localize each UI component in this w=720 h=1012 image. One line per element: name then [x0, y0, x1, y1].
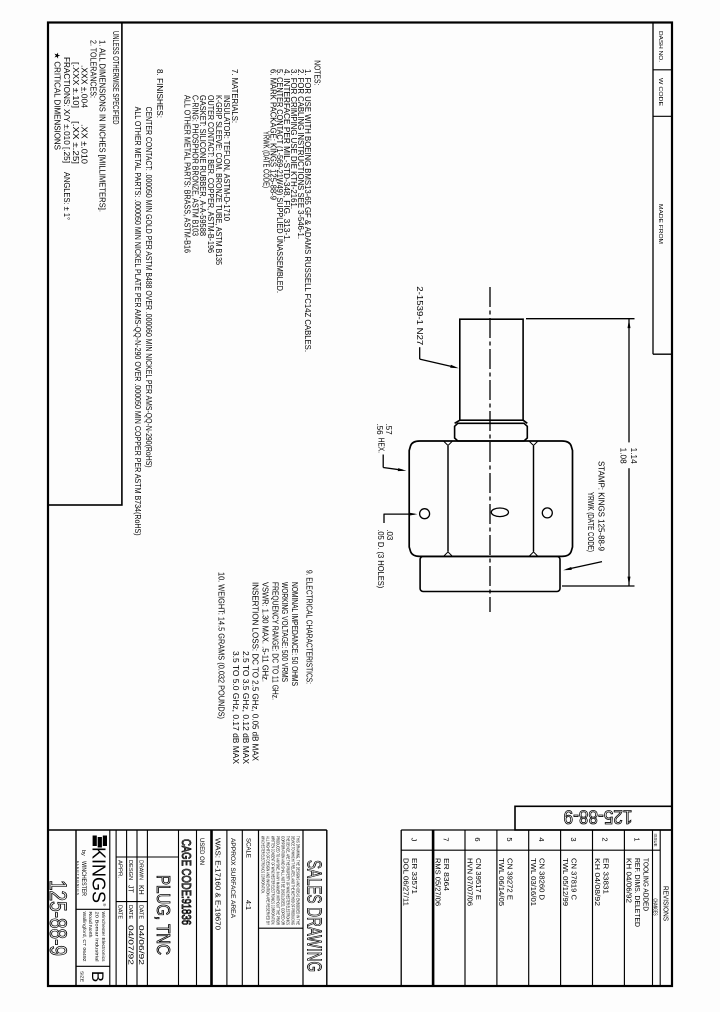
svg-text:2: 2 — [601, 837, 610, 841]
svg-text:CAGE CODE:91836: CAGE CODE:91836 — [179, 839, 193, 925]
svg-text:REVISIONS: REVISIONS — [661, 886, 668, 921]
svg-text:WAS: E-17160 & E-19670: WAS: E-17160 & E-19670 — [213, 838, 222, 930]
svg-text:MADE FROM: MADE FROM — [657, 204, 663, 244]
svg-text:4: 4 — [537, 837, 546, 841]
svg-text:ANGLES: ± 1°: ANGLES: ± 1° — [62, 172, 71, 220]
svg-text:VSWR: 1.30 MAX. .5-11 GHz.: VSWR: 1.30 MAX. .5-11 GHz. — [260, 582, 269, 682]
svg-text:6: 6 — [473, 837, 482, 841]
svg-text:Winchester Electronics: Winchester Electronics — [101, 912, 106, 963]
svg-text:04/07/92: 04/07/92 — [127, 925, 136, 965]
svg-text:YRWK (DATE CODE): YRWK (DATE CODE) — [586, 492, 595, 552]
svg-text:PLUG, TNC: PLUG, TNC — [153, 875, 173, 955]
svg-text:TWL 05/12/99: TWL 05/12/99 — [561, 858, 570, 906]
svg-text:4:1: 4:1 — [244, 900, 253, 910]
svg-text:®: ® — [102, 903, 107, 906]
svg-text:8. FINISHES:: 8. FINISHES: — [155, 69, 164, 118]
svg-text:FREQUENCY RANGE: DC TO 11 GHz.: FREQUENCY RANGE: DC TO 11 GHz. — [270, 582, 279, 700]
svg-text:3.5 TO 5.0 GHz, 0.17 dB MAX: 3.5 TO 5.0 GHz, 0.17 dB MAX — [231, 651, 240, 765]
svg-text:1.08: 1.08 — [619, 448, 628, 465]
svg-text:1.14: 1.14 — [629, 448, 638, 465]
svg-text:DASH NO.: DASH NO. — [657, 31, 663, 63]
svg-text:NOTES:: NOTES: — [313, 60, 322, 85]
svg-text:04/06/92: 04/06/92 — [137, 925, 146, 965]
svg-text:TWL 06/14/05: TWL 06/14/05 — [497, 858, 506, 906]
svg-text:KH 04/08/92: KH 04/08/92 — [593, 858, 602, 906]
svg-text:DATE: DATE — [127, 905, 133, 920]
svg-text:.03: .03 — [385, 529, 394, 541]
svg-text:SALES DRAWING: SALES DRAWING — [303, 860, 325, 972]
svg-text:10. WEIGHT: 14.5 GRAMS (0.032: 10. WEIGHT: 14.5 GRAMS (0.032 POUNDS) — [217, 572, 226, 719]
svg-text:W CODE: W CODE — [657, 78, 663, 106]
svg-text:SIZE: SIZE — [80, 971, 85, 982]
svg-text:DATE: DATE — [116, 905, 122, 920]
svg-text:ALL OTHER METAL PARTS: BRASS,: ALL OTHER METAL PARTS: BRASS, ASTM-B16 — [182, 95, 191, 253]
svg-text:20 Bomar Industrial: 20 Bomar Industrial — [95, 912, 100, 962]
svg-text:DESGN: DESGN — [127, 860, 133, 880]
svg-text:[.XX ±.25]: [.XX ±.25] — [71, 121, 80, 164]
svg-text:HEX.: HEX. — [377, 438, 386, 453]
svg-text:Road North: Road North — [88, 912, 93, 939]
svg-text:.05 D. (3 HOLES): .05 D. (3 HOLES) — [376, 529, 385, 588]
svg-text:Wallingford, CT 06492: Wallingford, CT 06492 — [82, 912, 87, 963]
svg-text:JT: JT — [127, 885, 134, 894]
svg-text:TWL 03/16/01: TWL 03/16/01 — [529, 858, 538, 906]
svg-text:USED ON: USED ON — [198, 838, 205, 865]
svg-text:[.XXX ±.10]: [.XXX ±.10] — [71, 62, 80, 108]
svg-text:9. ELECTRICAL CHARACTERISTICS:: 9. ELECTRICAL CHARACTERISTICS: — [305, 570, 314, 684]
svg-text:SCALE: SCALE — [245, 838, 252, 859]
svg-text:INSERTION LOSS: DC TO 2.5 GHz,: INSERTION LOSS: DC TO 2.5 GHz, 0.05 dB M… — [251, 582, 260, 762]
svg-text:.XXX ±.004: .XXX ±.004 — [80, 65, 89, 109]
svg-text:1. ALL DIMENSIONS IN INCHES [M: 1. ALL DIMENSIONS IN INCHES [MILLIMETERS… — [97, 40, 106, 212]
svg-text:HVN 07/07/06: HVN 07/07/06 — [465, 858, 474, 906]
svg-text:125-88-9: 125-88-9 — [564, 806, 633, 827]
svg-text:5: 5 — [505, 837, 514, 841]
svg-text:★ CRITICAL DIMENSIONS: ★ CRITICAL DIMENSIONS — [53, 52, 62, 150]
svg-text:KINGS: KINGS — [89, 847, 110, 903]
svg-text:1: 1 — [633, 837, 642, 841]
svg-text:UNLESS OTHERWISE SPECIFIED: UNLESS OTHERWISE SPECIFIED — [111, 31, 120, 125]
svg-text:B: B — [88, 971, 107, 982]
svg-text:DATE: DATE — [137, 905, 143, 920]
svg-text:APPROX SURFACE AREA: APPROX SURFACE AREA — [229, 838, 236, 919]
svg-text:by: by — [80, 850, 86, 856]
svg-text:2-1539-1 N27: 2-1539-1 N27 — [415, 286, 424, 346]
svg-text:ALL OTHER METAL PARTS: .000050: ALL OTHER METAL PARTS: .000050 MIN NICKE… — [133, 107, 142, 536]
svg-text:125-88-9: 125-88-9 — [44, 880, 71, 956]
svg-text:CENTER CONTACT: .000050 MIN GO: CENTER CONTACT: .000050 MIN GOLD PER AST… — [144, 107, 153, 468]
svg-text:.57: .57 — [384, 424, 393, 436]
svg-text:WORKING VOLTAGE: 500 VRMS: WORKING VOLTAGE: 500 VRMS — [280, 582, 289, 682]
svg-text:7: 7 — [441, 837, 450, 841]
svg-text:ISSUE: ISSUE — [652, 834, 658, 847]
svg-text:RMS 05/27/06: RMS 05/27/06 — [433, 858, 442, 906]
svg-text:WINCHESTER ELECTRONICS CORPORA: WINCHESTER ELECTRONICS CORPORATION. — [261, 836, 266, 894]
svg-text:.XX ±.010: .XX ±.010 — [80, 124, 89, 165]
svg-text:2.5 TO 3.5 GHz, 0.12 dB MAX: 2.5 TO 3.5 GHz, 0.12 dB MAX — [241, 651, 250, 765]
svg-text:J: J — [409, 838, 418, 842]
svg-text:FRACTIONS: X/Y ±.010 [.25]: FRACTIONS: X/Y ±.010 [.25] — [62, 57, 71, 163]
svg-text:2. TOLERANCES:: 2. TOLERANCES: — [89, 40, 98, 98]
svg-text:CHANGES: CHANGES — [652, 899, 658, 916]
svg-text:NOMINAL IMPEDANCE: 50 OHMS: NOMINAL IMPEDANCE: 50 OHMS — [290, 582, 299, 686]
svg-text:KH: KH — [137, 885, 144, 895]
svg-text:YRWK (DATE CODE): YRWK (DATE CODE) — [261, 131, 270, 188]
svg-text:E L E C T R O N I C S: E L E C T R O N I C S — [76, 861, 80, 895]
svg-text:APPR.: APPR. — [116, 860, 122, 878]
svg-text:STAMP: KINGS 125-88-9: STAMP: KINGS 125-88-9 — [597, 461, 606, 552]
svg-text:.56: .56 — [375, 424, 384, 436]
svg-text:DOL 06/27/11: DOL 06/27/11 — [402, 858, 411, 906]
svg-text:KH 04/06/92: KH 04/06/92 — [625, 858, 634, 903]
svg-text:3: 3 — [569, 837, 578, 841]
svg-text:DRAWN: DRAWN — [137, 860, 143, 880]
